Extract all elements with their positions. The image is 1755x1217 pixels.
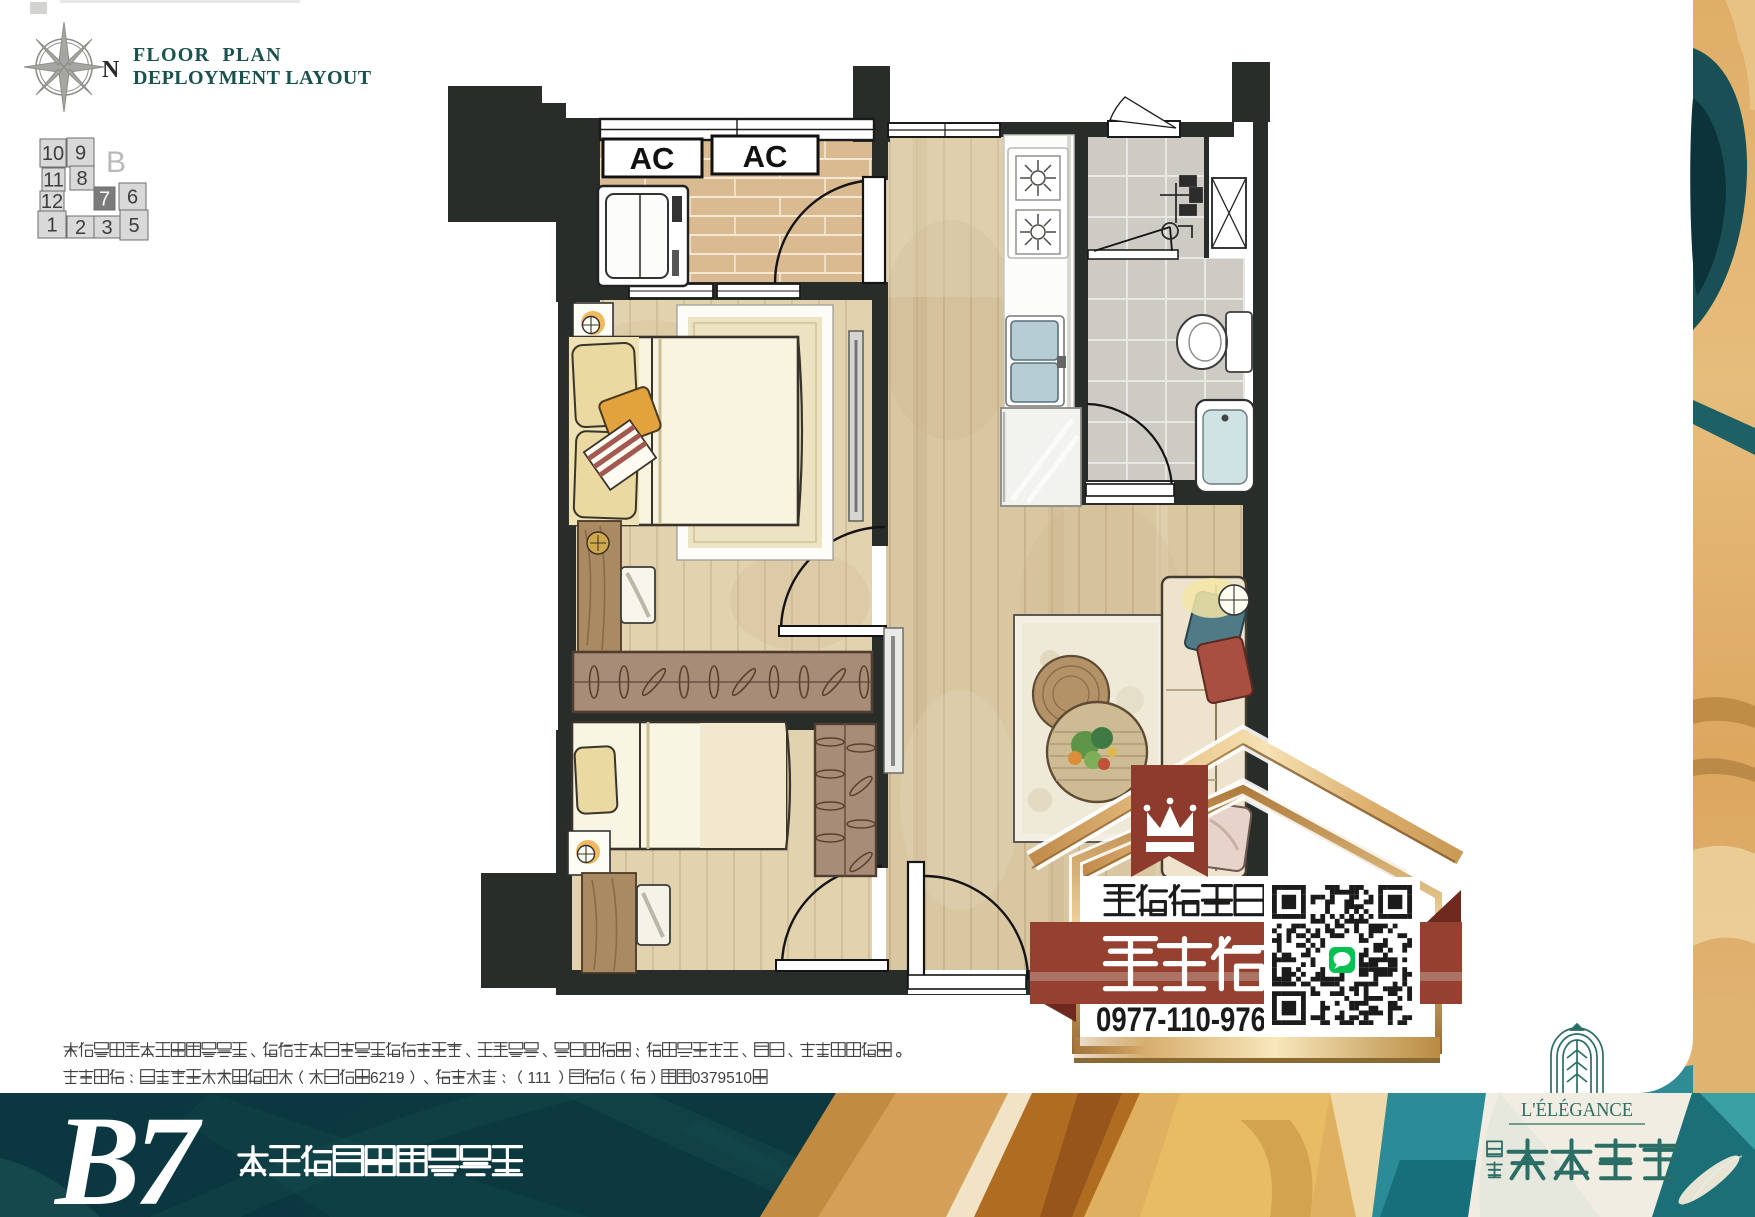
svg-text:B: B bbox=[106, 146, 126, 179]
svg-text:10: 10 bbox=[42, 143, 64, 165]
svg-text:0379510: 0379510 bbox=[692, 1070, 753, 1087]
svg-text:6219: 6219 bbox=[370, 1070, 404, 1087]
svg-text:5: 5 bbox=[128, 215, 139, 237]
svg-text:9: 9 bbox=[75, 143, 86, 165]
svg-text:8: 8 bbox=[76, 168, 87, 190]
svg-text:N: N bbox=[102, 57, 120, 83]
svg-text:7: 7 bbox=[99, 189, 110, 211]
svg-text:AC: AC bbox=[630, 141, 675, 176]
svg-text:11: 11 bbox=[43, 170, 64, 192]
svg-text:12: 12 bbox=[41, 191, 63, 213]
svg-text:2: 2 bbox=[75, 217, 86, 239]
svg-text:L'ÉLÉGANCE: L'ÉLÉGANCE bbox=[1521, 1098, 1633, 1121]
svg-text:B7: B7 bbox=[53, 1090, 203, 1217]
svg-text:DEPLOYMENT LAYOUT: DEPLOYMENT LAYOUT bbox=[133, 67, 372, 89]
svg-text:AC: AC bbox=[743, 139, 788, 174]
svg-text:6: 6 bbox=[127, 187, 138, 209]
svg-text:1: 1 bbox=[46, 215, 57, 237]
svg-text:FLOOR PLAN: FLOOR PLAN bbox=[133, 44, 282, 66]
svg-text:111: 111 bbox=[528, 1070, 552, 1087]
svg-text:3: 3 bbox=[101, 217, 112, 239]
svg-text:0977-110-976: 0977-110-976 bbox=[1096, 1001, 1266, 1039]
